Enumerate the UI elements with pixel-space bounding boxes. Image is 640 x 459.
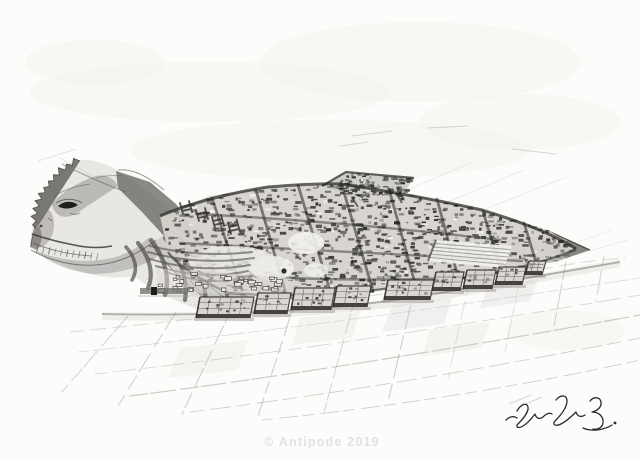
artwork-canvas: © Antipode 2019	[0, 0, 640, 459]
artwork-illustration: © Antipode 2019	[0, 0, 640, 459]
watermark: © Antipode 2019	[264, 435, 380, 449]
artist-signature	[506, 395, 616, 430]
